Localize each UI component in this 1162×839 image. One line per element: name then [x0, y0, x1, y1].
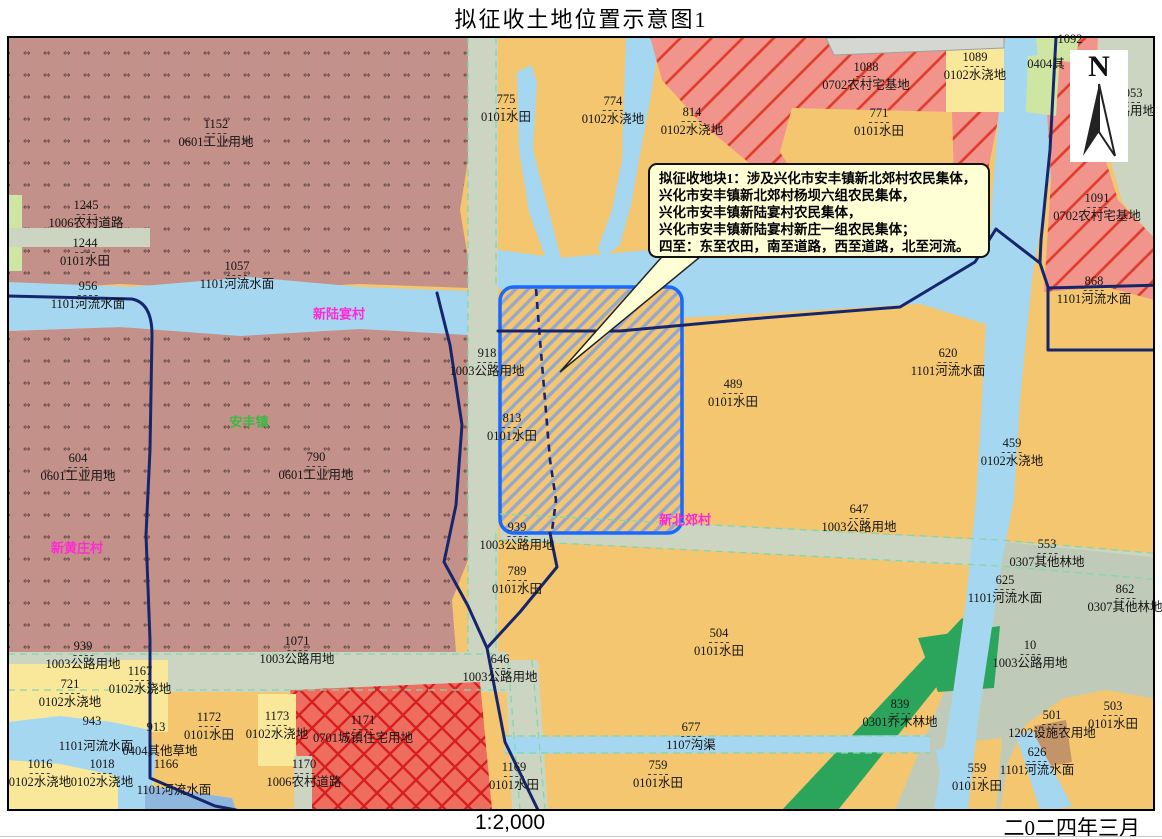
callout-line: 四至：东至农田，南至道路，西至道路，北至河流。: [659, 238, 980, 255]
callout-text: 涉及兴化市安丰镇新北郊村农民集体，: [747, 171, 977, 186]
bottom-divider: [0, 836, 1162, 837]
map-scale: 1:2,000: [430, 811, 590, 835]
compass-needle-icon: [1077, 82, 1121, 158]
acquisition-parcel: [500, 287, 682, 533]
north-arrow: N: [1070, 50, 1128, 162]
callout-box: 拟征收地块1：涉及兴化市安丰镇新北郊村农民集体， 兴化市安丰镇新北郊村杨坝六组农…: [648, 163, 990, 258]
map-canvas: ⇔: [0, 0, 1162, 839]
north-label: N: [1088, 52, 1110, 82]
callout-line: 兴化市安丰镇新陆宴村新庄一组农民集体；: [659, 221, 980, 238]
callout-line: 兴化市安丰镇新北郊村杨坝六组农民集体，: [659, 187, 980, 204]
callout-line: 拟征收地块1：涉及兴化市安丰镇新北郊村农民集体，: [659, 170, 980, 187]
callout-line: 兴化市安丰镇新陆宴村农民集体，: [659, 204, 980, 221]
callout-title: 拟征收地块1：: [659, 171, 747, 186]
land-acquisition-map-page: 拟征收土地位置示意图1 ⇔: [0, 0, 1162, 839]
map-date: 二0二四年三月: [1004, 812, 1141, 839]
